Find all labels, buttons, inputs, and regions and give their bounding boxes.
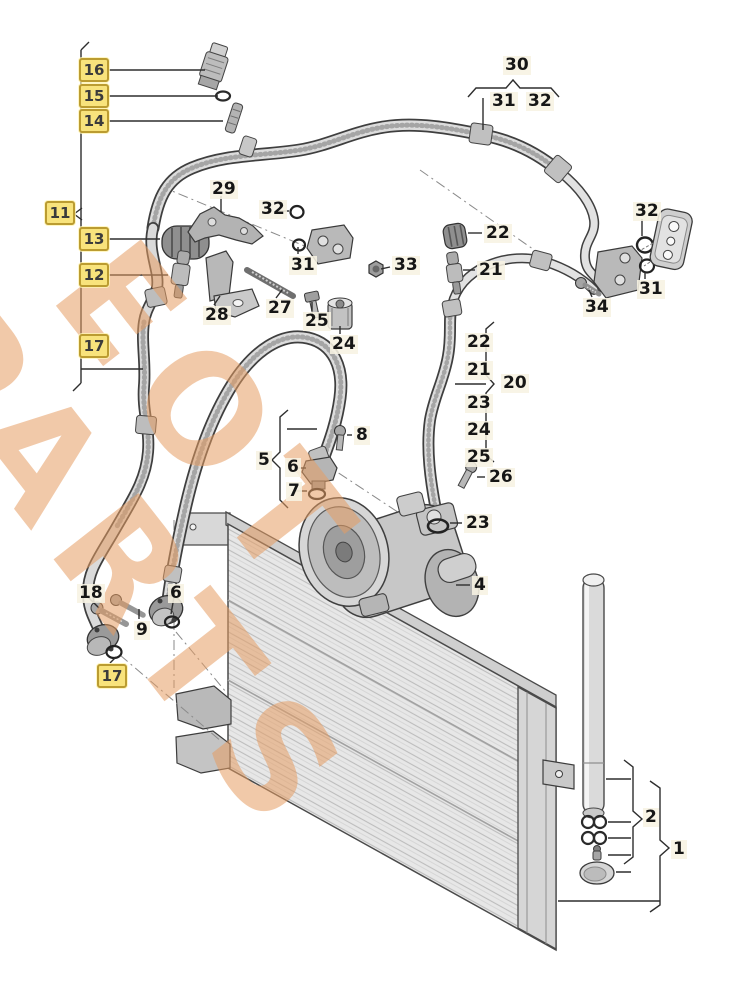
o-ring-7 [309, 489, 325, 499]
fitting-6 [302, 457, 337, 489]
bolt-26 [456, 460, 479, 489]
cap-22 [442, 222, 468, 249]
o-ring-17-bottom [107, 646, 122, 658]
o-ring-32-right [637, 238, 653, 253]
manifold-block-right [594, 246, 642, 298]
bracket-29 [188, 207, 263, 244]
valve-core-14 [225, 102, 244, 134]
coupling-block-left [307, 225, 353, 264]
o-ring-32-left [291, 206, 304, 218]
bushing-24 [328, 298, 352, 329]
sealing-plate-34 [649, 207, 694, 271]
seal-ring-15 [216, 92, 230, 101]
bolt-9 [111, 595, 144, 616]
bracket-28 [206, 251, 259, 317]
hose-left-11 [88, 228, 168, 630]
parts-diagram: EOT PARTS 16 15 14 11 13 12 17 17 29 32 … [0, 0, 734, 1000]
bolt-25 [304, 291, 323, 319]
service-valve-16 [196, 41, 231, 90]
nut-33 [369, 261, 383, 277]
pipe-flange-left [84, 620, 123, 658]
diagram-artwork [0, 0, 734, 1000]
